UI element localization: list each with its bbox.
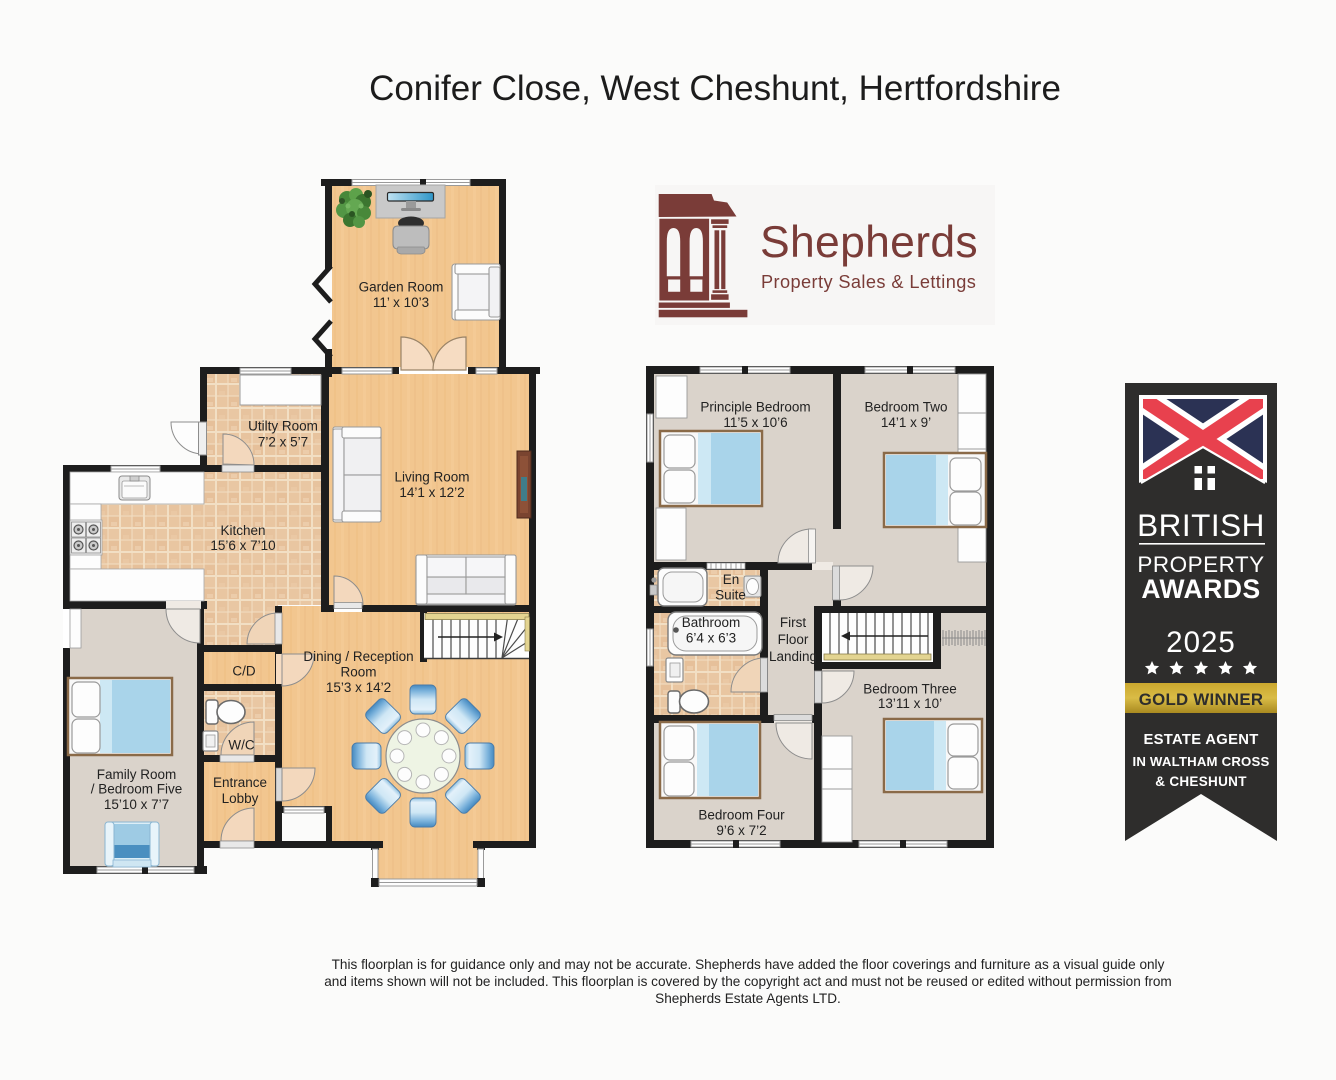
svg-text:14’1 x 9’: 14’1 x 9’: [881, 415, 931, 430]
svg-text:ESTATE AGENT: ESTATE AGENT: [1143, 732, 1258, 748]
svg-text:Lobby: Lobby: [222, 791, 259, 806]
svg-text:Shepherds: Shepherds: [760, 218, 978, 267]
svg-text:Landing: Landing: [769, 649, 817, 664]
svg-text:Floor: Floor: [778, 632, 809, 647]
svg-text:/ Bedroom Five: / Bedroom Five: [91, 782, 183, 797]
svg-text:En: En: [723, 572, 740, 587]
svg-text:First: First: [780, 615, 806, 630]
svg-text:Dining / Reception: Dining / Reception: [303, 649, 413, 664]
svg-text:Garden Room: Garden Room: [359, 280, 444, 295]
svg-text:6’4 x 6’3: 6’4 x 6’3: [686, 631, 736, 646]
svg-text:Shepherds Estate Agents LTD.: Shepherds Estate Agents LTD.: [655, 991, 841, 1006]
svg-text:Family Room: Family Room: [97, 767, 177, 782]
svg-text:C/D: C/D: [232, 664, 256, 679]
svg-text:9’6 x 7’2: 9’6 x 7’2: [716, 823, 766, 838]
svg-text:BRITISH: BRITISH: [1137, 507, 1265, 543]
svg-text:7’2 x 5’7: 7’2 x 5’7: [258, 435, 308, 450]
svg-text:and items shown will not be in: and items shown will not be included. Th…: [324, 974, 1172, 989]
svg-text:IN WALTHAM CROSS: IN WALTHAM CROSS: [1132, 754, 1269, 769]
svg-text:Conifer Close, West Cheshunt,: Conifer Close, West Cheshunt, Hertfordsh…: [369, 69, 1061, 108]
svg-text:Bedroom Four: Bedroom Four: [698, 808, 785, 823]
svg-text:This floorplan is for guidance: This floorplan is for guidance only and …: [332, 957, 1165, 972]
svg-text:Bedroom Three: Bedroom Three: [863, 682, 957, 697]
svg-text:Property Sales & Lettings: Property Sales & Lettings: [761, 272, 976, 292]
svg-text:Room: Room: [340, 665, 376, 680]
svg-text:Utilty Room: Utilty Room: [248, 419, 318, 434]
svg-text:11’ x 10’3: 11’ x 10’3: [373, 295, 429, 310]
svg-text:GOLD WINNER: GOLD WINNER: [1139, 690, 1264, 709]
svg-text:Kitchen: Kitchen: [220, 523, 265, 538]
svg-text:Entrance: Entrance: [213, 775, 267, 790]
svg-text:Suite: Suite: [715, 588, 746, 603]
svg-text:15’10 x 7’7: 15’10 x 7’7: [104, 797, 169, 812]
svg-text:15’3 x 14’2: 15’3 x 14’2: [326, 680, 391, 695]
svg-text:13’11 x 10’: 13’11 x 10’: [878, 696, 942, 711]
svg-text:W/C: W/C: [228, 738, 254, 753]
svg-text:14’1 x 12’2: 14’1 x 12’2: [399, 485, 464, 500]
svg-text:11’5 x 10’6: 11’5 x 10’6: [723, 415, 787, 430]
svg-text:Bathroom: Bathroom: [682, 615, 741, 630]
svg-text:& CHESHUNT: & CHESHUNT: [1155, 774, 1247, 789]
svg-text:Bedroom Two: Bedroom Two: [864, 400, 947, 415]
svg-text:Principle Bedroom: Principle Bedroom: [700, 400, 810, 415]
svg-text:Living Room: Living Room: [394, 470, 469, 485]
svg-text:2025: 2025: [1166, 626, 1236, 659]
svg-text:15’6 x 7’10: 15’6 x 7’10: [210, 538, 275, 553]
svg-text:AWARDS: AWARDS: [1141, 574, 1260, 604]
